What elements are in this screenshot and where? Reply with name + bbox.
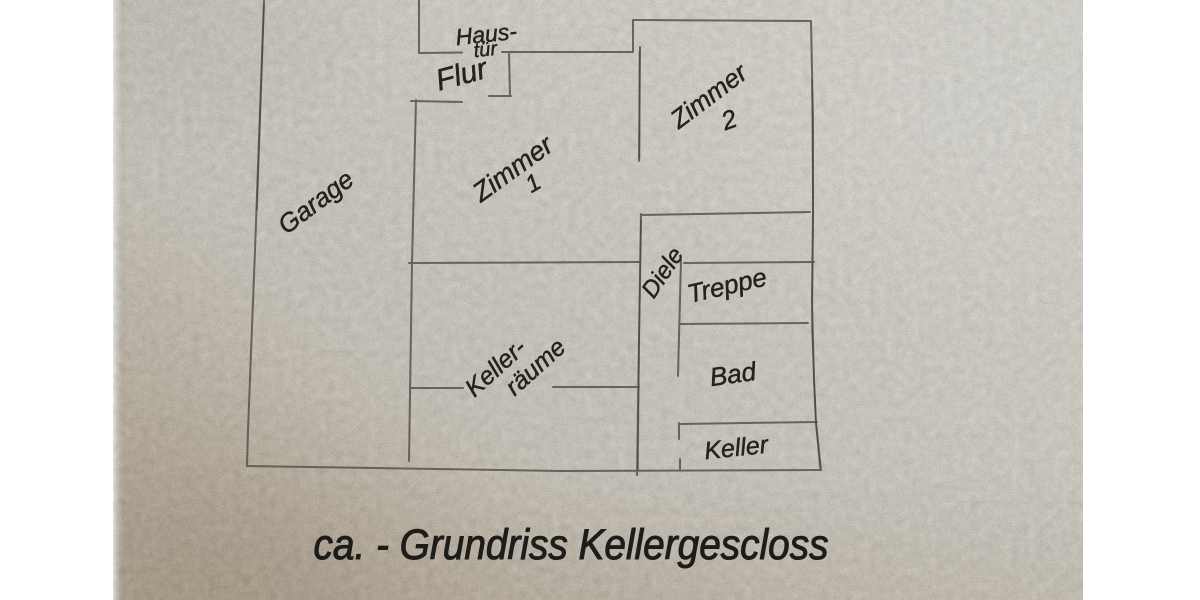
svg-text:ca. - Grundriss Kellergescloss: ca. - Grundriss Kellergescloss [314, 521, 829, 569]
